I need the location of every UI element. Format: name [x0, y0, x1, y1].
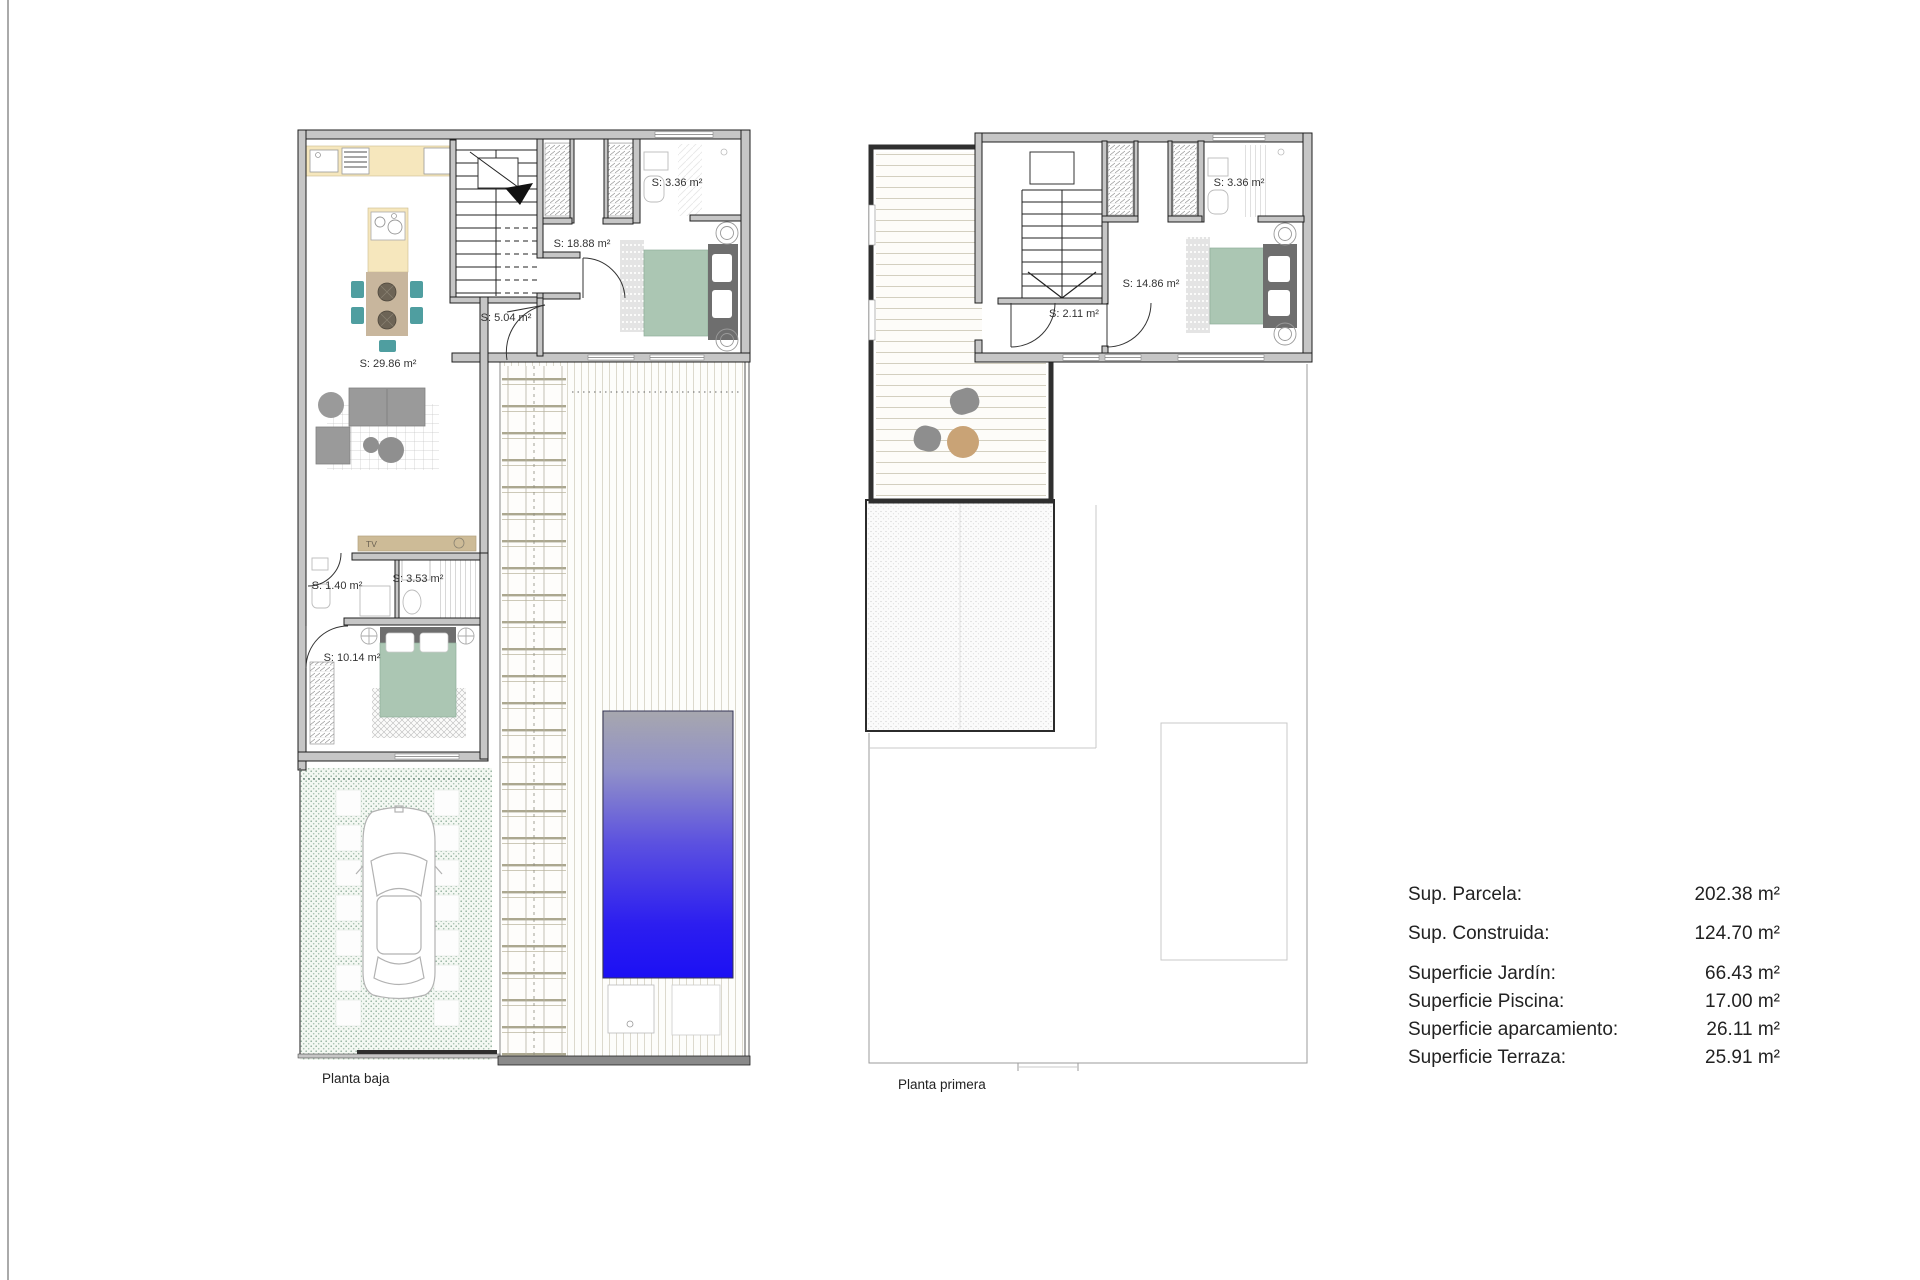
summary-label: Superficie Terraza:: [1408, 1047, 1566, 1069]
floorplan-drawing: TV: [0, 0, 1920, 1280]
toilet-icon: [1208, 190, 1228, 214]
label-bathroom-small: S: 3.53 m²: [393, 573, 444, 585]
appliance-icon: [342, 148, 369, 174]
rug: [620, 240, 644, 332]
pillow: [1268, 256, 1290, 282]
pillow: [420, 633, 448, 652]
closet: [545, 143, 571, 216]
bed: [1210, 248, 1265, 324]
summary-value: 124.70 m²: [1694, 923, 1780, 945]
bed: [644, 250, 708, 336]
label-bathroom: S: 3.36 m²: [1214, 177, 1265, 189]
rug: [1186, 237, 1210, 333]
label-bedroom-main: S: 18.88 m²: [554, 238, 611, 250]
summary-label: Superficie Jardín:: [1408, 963, 1556, 985]
pillow: [1268, 290, 1290, 316]
summary-row-aparcamiento: Superficie aparcamiento: 26.11 m²: [1408, 1019, 1780, 1041]
summary-value: 25.91 m²: [1705, 1047, 1780, 1069]
surface-summary: Sup. Parcela: 202.38 m² Sup. Construida:…: [1408, 884, 1780, 1069]
closet: [1173, 143, 1197, 215]
summary-label: Sup. Parcela:: [1408, 884, 1522, 906]
summary-row-terraza: Superficie Terraza: 25.91 m²: [1408, 1047, 1780, 1069]
label-hallway: S: 5.04 m²: [481, 312, 532, 324]
cooktop-icon: [371, 212, 405, 240]
summary-row-piscina: Superficie Piscina: 17.00 m²: [1408, 991, 1780, 1013]
bed: [380, 643, 456, 717]
plan2-caption: Planta primera: [898, 1077, 986, 1092]
label-bedroom: S: 14.86 m²: [1123, 278, 1180, 290]
pillow: [386, 633, 414, 652]
pillow: [712, 254, 732, 282]
coffee-table-large: [378, 437, 404, 463]
plan-planta-baja: TV: [298, 130, 750, 1086]
plan1-caption: Planta baja: [322, 1071, 390, 1086]
summary-label: Sup. Construida:: [1408, 923, 1550, 945]
label-bathroom-top: S: 3.36 m²: [652, 177, 703, 189]
label-kitchen-living: S: 29.86 m²: [360, 358, 417, 370]
summary-row-jardin: Superficie Jardín: 66.43 m²: [1408, 963, 1780, 985]
closet: [1108, 143, 1133, 215]
pouf: [318, 392, 344, 418]
pergola-strip: [502, 366, 566, 1058]
pool: [603, 711, 733, 978]
fridge-icon: [424, 148, 452, 174]
label-wc: S: 1.40 m²: [312, 580, 363, 592]
summary-value: 17.00 m²: [1705, 991, 1780, 1013]
bath-toilet-icon: [403, 590, 421, 614]
vanity-icon: [1208, 158, 1228, 176]
tv-unit: TV: [358, 536, 476, 551]
sink-icon: [310, 150, 338, 172]
terrace-table: [947, 426, 979, 458]
summary-value: 66.43 m²: [1705, 963, 1780, 985]
coffee-table-small: [363, 437, 379, 453]
summary-label: Superficie aparcamiento:: [1408, 1019, 1618, 1041]
closet: [310, 662, 334, 744]
summary-value: 26.11 m²: [1706, 1019, 1780, 1041]
summary-row-construida: Sup. Construida: 124.70 m²: [1408, 923, 1780, 945]
tv-label: TV: [366, 539, 377, 549]
car-icon: [356, 806, 442, 999]
summary-row-parcela: Sup. Parcela: 202.38 m²: [1408, 884, 1780, 906]
label-hallway: S: 2.11 m²: [1049, 308, 1099, 320]
pillow: [712, 290, 732, 318]
wc-sink-icon: [312, 558, 328, 570]
plan-planta-primera: S: 2.11 m² S: 14.86 m² S: 3.36 m² Planta…: [866, 133, 1312, 1092]
summary-value: 202.38 m²: [1694, 884, 1780, 906]
pool-outline-below: [1161, 723, 1287, 960]
armchair: [316, 427, 350, 464]
garden-area: [300, 768, 497, 1060]
deck-area: [500, 358, 749, 1062]
summary-label: Superficie Piscina:: [1408, 991, 1564, 1013]
vanity-icon: [644, 152, 668, 170]
closet: [608, 143, 633, 216]
label-bedroom-second: S: 10.14 m²: [324, 652, 381, 664]
